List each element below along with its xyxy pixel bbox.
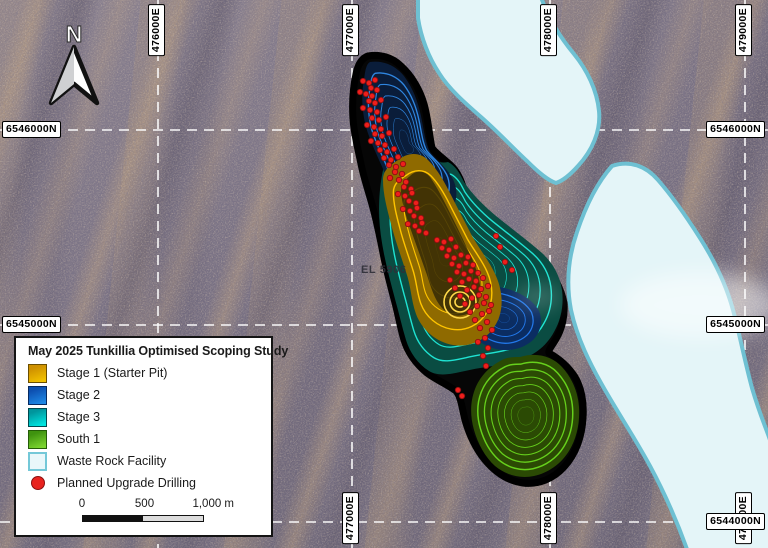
planned-drill-hole [401,184,406,189]
planned-drill-hole [478,286,483,291]
legend-item-drilling: Planned Upgrade Drilling [28,472,261,494]
planned-drill-hole [463,260,468,265]
planned-drill-hole [374,87,379,92]
planned-drill-hole [402,193,407,198]
legend-item-wrf: Waste Rock Facility [28,450,261,472]
planned-drill-hole [400,161,405,166]
planned-drill-hole [457,293,462,298]
planned-drill-hole [374,109,379,114]
planned-drill-hole [395,191,400,196]
planned-drill-hole [480,353,485,358]
planned-drill-hole [378,126,383,131]
planned-drill-hole [407,208,412,213]
planned-drill-hole [461,271,466,276]
grid-coordinate-label: 6544000N [706,513,765,530]
planned-drill-hole [475,339,480,344]
planned-drill-hole [412,223,417,228]
planned-drill-hole [469,295,474,300]
planned-drill-hole [381,155,386,160]
planned-drill-hole [371,124,376,129]
legend-dot-swatch [31,476,45,490]
legend-color-swatch [28,364,47,383]
planned-drill-hole [455,387,460,392]
grid-coordinate-label: 477000E [342,492,359,544]
north-arrow-letter: N [66,21,83,47]
planned-drill-hole [434,237,439,242]
planned-drill-hole [473,278,478,283]
planned-drill-hole [396,177,401,182]
planned-drill-hole [452,285,457,290]
planned-drill-hole [475,270,480,275]
waste-rock-facility-north [418,0,599,183]
map-canvas: EL 5906 476000E477000E478000E479000E4770… [0,0,768,548]
planned-drill-hole [367,107,372,112]
planned-drill-hole [386,130,391,135]
grid-coordinate-label: 478000E [540,4,557,56]
planned-drill-hole [387,175,392,180]
planned-drill-hole [497,244,502,249]
grid-coordinate-label: 6546000N [706,121,765,138]
planned-drill-hole [485,345,490,350]
planned-drill-hole [451,255,456,260]
planned-drill-hole [485,283,490,288]
planned-drill-hole [479,311,484,316]
legend-item-label: Stage 1 (Starter Pit) [57,366,167,380]
scale-bar-bar [82,515,204,522]
legend-items: Stage 1 (Starter Pit)Stage 2Stage 3South… [24,362,261,494]
planned-drill-hole [395,154,400,159]
planned-drill-hole [418,215,423,220]
legend-title: May 2025 Tunkillia Optimised Scoping Stu… [28,344,261,358]
grid-coordinate-label: 479000E [735,4,752,56]
planned-drill-hole [481,300,486,305]
planned-drill-hole [384,149,389,154]
grid-coordinate-label: 477000E [342,4,359,56]
planned-drill-hole [363,91,368,96]
planned-drill-hole [369,93,374,98]
planned-drill-hole [493,233,498,238]
planned-drill-hole [423,230,428,235]
waste-rock-facility-south [568,164,768,548]
planned-drill-hole [378,97,383,102]
planned-drill-hole [448,236,453,241]
scale-bar: 05001,000 m [82,498,207,526]
planned-drill-hole [459,279,464,284]
planned-drill-hole [400,206,405,211]
grid-coordinate-label: 6545000N [2,316,61,333]
planned-drill-hole [360,105,365,110]
planned-drill-hole [368,85,373,90]
planned-drill-hole [360,78,365,83]
planned-drill-hole [465,254,470,259]
planned-drill-hole [368,138,373,143]
legend-item-label: Waste Rock Facility [57,454,166,468]
grid-coordinate-label: 6546000N [2,121,61,138]
scale-bar-tick-label: 500 [135,498,154,510]
legend-color-swatch [28,452,47,471]
planned-drill-hole [372,131,377,136]
planned-drill-hole [446,247,451,252]
legend-item-stage3: Stage 3 [28,406,261,428]
haze-patch-small [515,286,561,308]
planned-drill-hole [366,98,371,103]
planned-drill-hole [375,140,380,145]
legend-item-stage2: Stage 2 [28,384,261,406]
planned-drill-hole [393,164,398,169]
planned-drill-hole [372,100,377,105]
planned-drill-hole [377,147,382,152]
planned-drill-hole [483,363,488,368]
planned-drill-hole [447,277,452,282]
planned-drill-hole [471,284,476,289]
planned-drill-hole [441,239,446,244]
planned-drill-hole [409,190,414,195]
planned-drill-hole [392,169,397,174]
planned-drill-hole [379,133,384,138]
legend-item-label: Planned Upgrade Drilling [57,476,196,490]
scale-bar-ticks: 05001,000 m [82,498,207,512]
planned-drill-hole [383,114,388,119]
planned-drill-hole [414,205,419,210]
planned-drill-hole [468,268,473,273]
planned-drill-hole [386,162,391,167]
planned-drill-hole [458,252,463,257]
grid-coordinate-label: 6545000N [706,316,765,333]
planned-drill-hole [382,142,387,147]
planned-drill-hole [482,335,487,340]
planned-drill-hole [372,77,377,82]
planned-drill-hole [453,244,458,249]
legend-panel: May 2025 Tunkillia Optimised Scoping Stu… [14,336,273,537]
grid-coordinate-label: 478000E [540,492,557,544]
planned-drill-hole [462,301,467,306]
legend-item-south1: South 1 [28,428,261,450]
legend-item-stage1: Stage 1 (Starter Pit) [28,362,261,384]
planned-drill-hole [466,276,471,281]
tenement-label: EL 5906 [361,264,407,276]
planned-drill-hole [413,200,418,205]
planned-drill-hole [470,262,475,267]
planned-drill-hole [477,325,482,330]
planned-drill-hole [476,292,481,297]
scale-bar-tick-label: 1,000 m [192,498,234,510]
planned-drill-hole [502,259,507,264]
planned-drill-hole [486,308,491,313]
legend-color-swatch [28,430,47,449]
planned-drill-hole [449,261,454,266]
planned-drill-hole [411,213,416,218]
planned-drill-hole [459,393,464,398]
legend-color-swatch [28,408,47,427]
planned-drill-hole [484,319,489,324]
north-arrow: N [46,14,102,110]
planned-drill-hole [439,245,444,250]
legend-item-label: Stage 3 [57,410,100,424]
planned-drill-hole [480,275,485,280]
planned-drill-hole [464,287,469,292]
planned-drill-hole [405,221,410,226]
planned-drill-hole [376,117,381,122]
planned-drill-hole [419,220,424,225]
legend-item-label: Stage 2 [57,388,100,402]
planned-drill-hole [467,309,472,314]
planned-drill-hole [483,294,488,299]
planned-drill-hole [369,115,374,120]
planned-drill-hole [444,253,449,258]
planned-drill-hole [474,303,479,308]
grid-coordinate-label: 476000E [148,4,165,56]
planned-drill-hole [406,198,411,203]
planned-drill-hole [391,146,396,151]
planned-drill-hole [488,302,493,307]
legend-item-label: South 1 [57,432,100,446]
planned-drill-hole [456,263,461,268]
planned-drill-hole [472,317,477,322]
planned-drill-hole [416,228,421,233]
planned-drill-hole [399,171,404,176]
planned-drill-hole [364,122,369,127]
planned-drill-hole [509,267,514,272]
planned-drill-hole [454,269,459,274]
planned-drill-hole [357,89,362,94]
planned-drill-hole [489,327,494,332]
legend-color-swatch [28,386,47,405]
scale-bar-tick-label: 0 [79,498,85,510]
